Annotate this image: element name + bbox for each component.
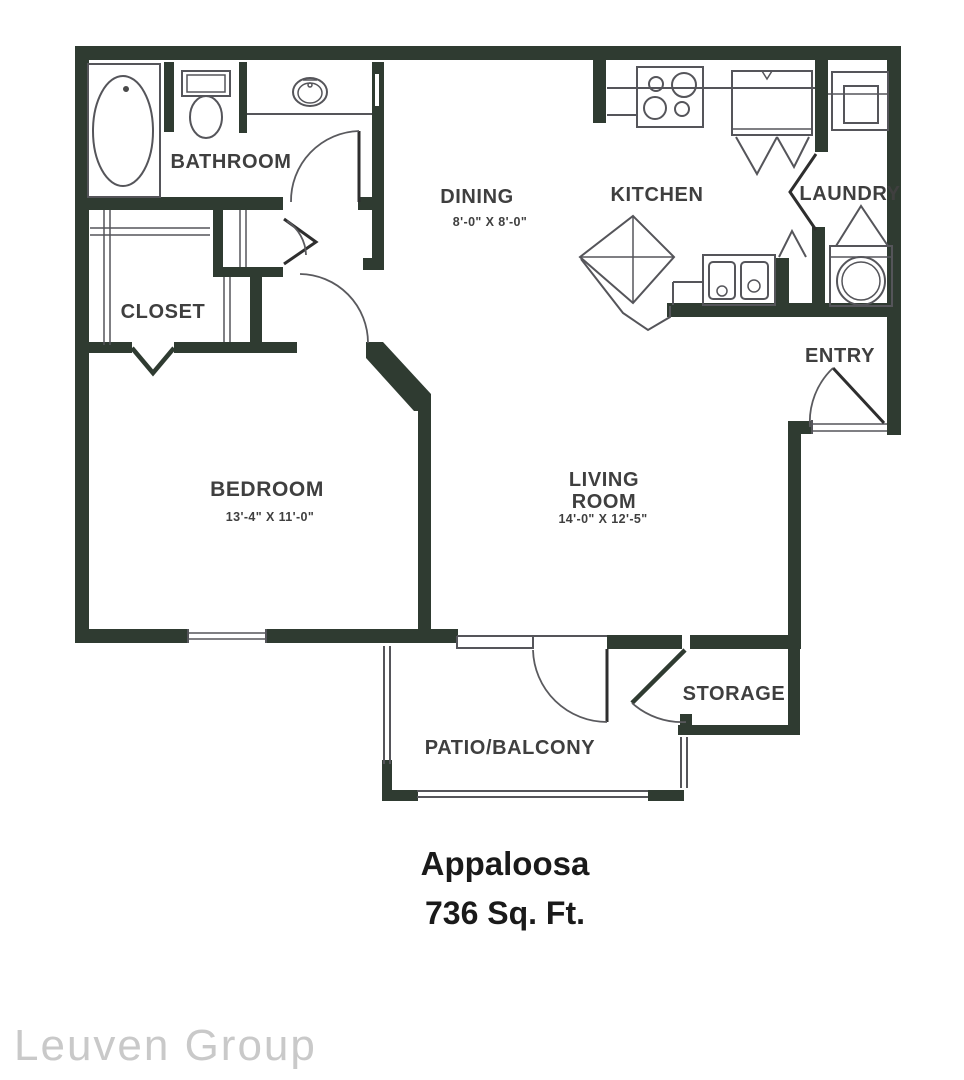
entry-door [810, 368, 887, 434]
refrigerator-icon [732, 71, 812, 174]
wall-segment [213, 267, 283, 277]
wall-segment [812, 227, 825, 307]
plan-area: 736 Sq. Ft. [425, 895, 585, 931]
toilet-icon [182, 71, 230, 138]
wall-segment [418, 396, 431, 629]
wall-segment [75, 46, 901, 60]
wall-gap [375, 74, 379, 106]
bathroom-fixtures [88, 64, 372, 202]
wall-segment [239, 62, 247, 133]
wall-segment [648, 790, 684, 801]
closet-bifold-door [132, 348, 174, 373]
wall-segment [775, 258, 789, 305]
storage-door [632, 650, 686, 722]
linen-closet-door [284, 219, 316, 264]
wall-segment [164, 62, 174, 132]
dining-label: DINING [440, 186, 514, 208]
bathroom-label: BATHROOM [170, 151, 291, 173]
wall-segment [75, 197, 283, 210]
kitchen-island-icon [580, 216, 674, 303]
wall-segment [382, 790, 418, 801]
living-room-dims: 14'-0" X 12'-5" [558, 512, 647, 526]
entry-label: ENTRY [805, 345, 875, 367]
bedroom-door [300, 274, 368, 343]
storage-label: STORAGE [683, 683, 786, 705]
kitchen-sink-icon [673, 255, 775, 305]
wall-segment [213, 197, 223, 277]
cabinet-door-flap [779, 231, 806, 257]
wall-segment [788, 649, 800, 735]
wall-segment [678, 725, 800, 735]
wall-segment [363, 258, 384, 270]
watermark: Leuven Group [14, 1021, 317, 1070]
wall-segment [75, 629, 188, 643]
room-labels: BATHROOM CLOSET DINING 8'-0" X 8'-0" KIT… [121, 151, 901, 759]
bedroom-window [188, 629, 266, 643]
kitchen-label: KITCHEN [610, 184, 703, 206]
bathtub-icon [88, 64, 160, 197]
washer-icon [832, 72, 888, 130]
wall-segment [788, 421, 801, 649]
patio-label: PATIO/BALCONY [425, 737, 595, 759]
closet-label: CLOSET [121, 301, 206, 323]
wall-segment [174, 342, 297, 353]
wall-segment [887, 46, 901, 435]
patio-door [457, 636, 607, 722]
floor-plan: BATHROOM CLOSET DINING 8'-0" X 8'-0" KIT… [0, 0, 964, 1080]
wall-segment [690, 635, 800, 649]
entry-threshold [812, 420, 887, 434]
living-room-label-line1: LIVING [569, 469, 639, 491]
floor-plan-page: BATHROOM CLOSET DINING 8'-0" X 8'-0" KIT… [0, 0, 964, 1080]
dryer-icon [830, 206, 892, 306]
wall-segment [788, 421, 812, 434]
wall-segment [815, 60, 828, 152]
stove-icon [637, 67, 703, 127]
wall-segment [266, 629, 458, 643]
bathroom-door [291, 131, 359, 202]
wall-segment [593, 60, 606, 123]
plan-title: Appaloosa [421, 845, 590, 882]
bathroom-sink-icon [293, 78, 327, 106]
laundry-label: LAUNDRY [799, 183, 900, 205]
living-room-label-line2: ROOM [572, 491, 637, 513]
dining-dims: 8'-0" X 8'-0" [453, 215, 527, 229]
wall-segment [607, 635, 682, 649]
wall-segment [250, 277, 262, 345]
bedroom-label: BEDROOM [210, 478, 324, 501]
bedroom-dims: 13'-4" X 11'-0" [226, 510, 314, 524]
